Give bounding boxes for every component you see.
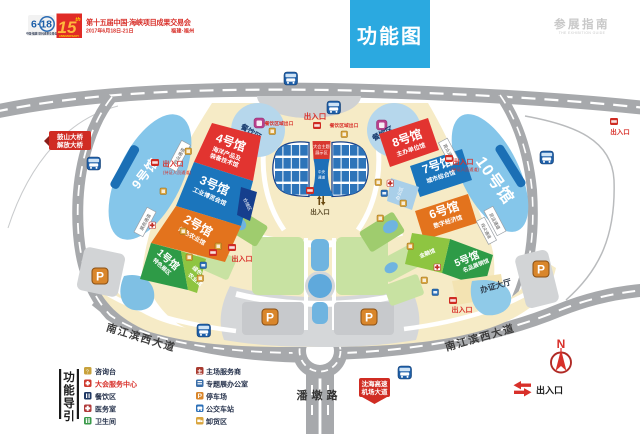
svg-text:功: 功 xyxy=(63,370,75,384)
svg-text:卸货区: 卸货区 xyxy=(206,417,227,426)
svg-text:福建·福州: 福建·福州 xyxy=(170,28,195,35)
svg-text:餐饮区: 餐饮区 xyxy=(94,392,116,401)
svg-text:沈海高速: 沈海高速 xyxy=(362,379,389,388)
svg-text:中央: 中央 xyxy=(318,169,326,174)
svg-text:出入口: 出入口 xyxy=(304,111,327,121)
svg-text:P: P xyxy=(198,393,203,400)
svg-text:引: 引 xyxy=(63,409,75,423)
svg-text:能: 能 xyxy=(63,383,75,397)
svg-text:公交车站: 公交车站 xyxy=(206,405,234,414)
svg-text:出入口: 出入口 xyxy=(310,207,330,216)
svg-text:th: th xyxy=(75,17,81,23)
svg-text:潘墩路: 潘墩路 xyxy=(297,388,342,402)
svg-text:第十五届中国·海峡项目成果交易会: 第十五届中国·海峡项目成果交易会 xyxy=(86,18,192,27)
svg-text:主场服务商: 主场服务商 xyxy=(206,367,241,376)
svg-text:出入口: 出入口 xyxy=(232,254,253,263)
svg-text:大会服务中心: 大会服务中心 xyxy=(95,380,137,389)
svg-text:?: ? xyxy=(86,370,89,376)
svg-text:解放大桥: 解放大桥 xyxy=(57,140,84,149)
svg-text:餐饮区域出口: 餐饮区域出口 xyxy=(264,120,294,127)
svg-text:出入口: 出入口 xyxy=(163,159,184,168)
svg-text:功能图: 功能图 xyxy=(357,24,423,48)
svg-text:THE EXHIBITION GUIDE: THE EXHIBITION GUIDE xyxy=(559,31,606,35)
svg-text:主: 主 xyxy=(197,368,202,375)
svg-text:出入口: 出入口 xyxy=(536,385,563,396)
svg-text:专题展办公室: 专题展办公室 xyxy=(206,380,248,389)
svg-text:通道: 通道 xyxy=(318,175,326,180)
svg-text:出入口: 出入口 xyxy=(452,305,473,314)
svg-text:医务室: 医务室 xyxy=(95,405,116,414)
svg-text:6·18: 6·18 xyxy=(31,19,52,31)
svg-text:大会主题: 大会主题 xyxy=(313,143,331,150)
svg-text:(持证人员通道): (持证人员通道) xyxy=(163,169,192,176)
svg-text:(持证人员通道): (持证人员通道) xyxy=(451,166,480,173)
svg-text:机场大道: 机场大道 xyxy=(362,387,389,396)
svg-text:出入口: 出入口 xyxy=(610,127,630,136)
svg-text:2017年6月18日-21日: 2017年6月18日-21日 xyxy=(86,28,134,35)
svg-text:参展指南: 参展指南 xyxy=(553,17,610,31)
svg-text:餐饮区域出口: 餐饮区域出口 xyxy=(329,122,359,129)
svg-text:中国·福建 项目成果交易会: 中国·福建 项目成果交易会 xyxy=(26,31,58,35)
svg-text:出入口: 出入口 xyxy=(453,157,474,166)
svg-text:咨询台: 咨询台 xyxy=(95,367,116,376)
svg-text:鼓山大桥: 鼓山大桥 xyxy=(57,132,84,141)
svg-text:ANNIVERSARY: ANNIVERSARY xyxy=(59,34,79,38)
svg-text:停车场: 停车场 xyxy=(206,392,227,401)
svg-text:导: 导 xyxy=(63,397,75,410)
svg-text:卫生间: 卫生间 xyxy=(95,417,116,426)
